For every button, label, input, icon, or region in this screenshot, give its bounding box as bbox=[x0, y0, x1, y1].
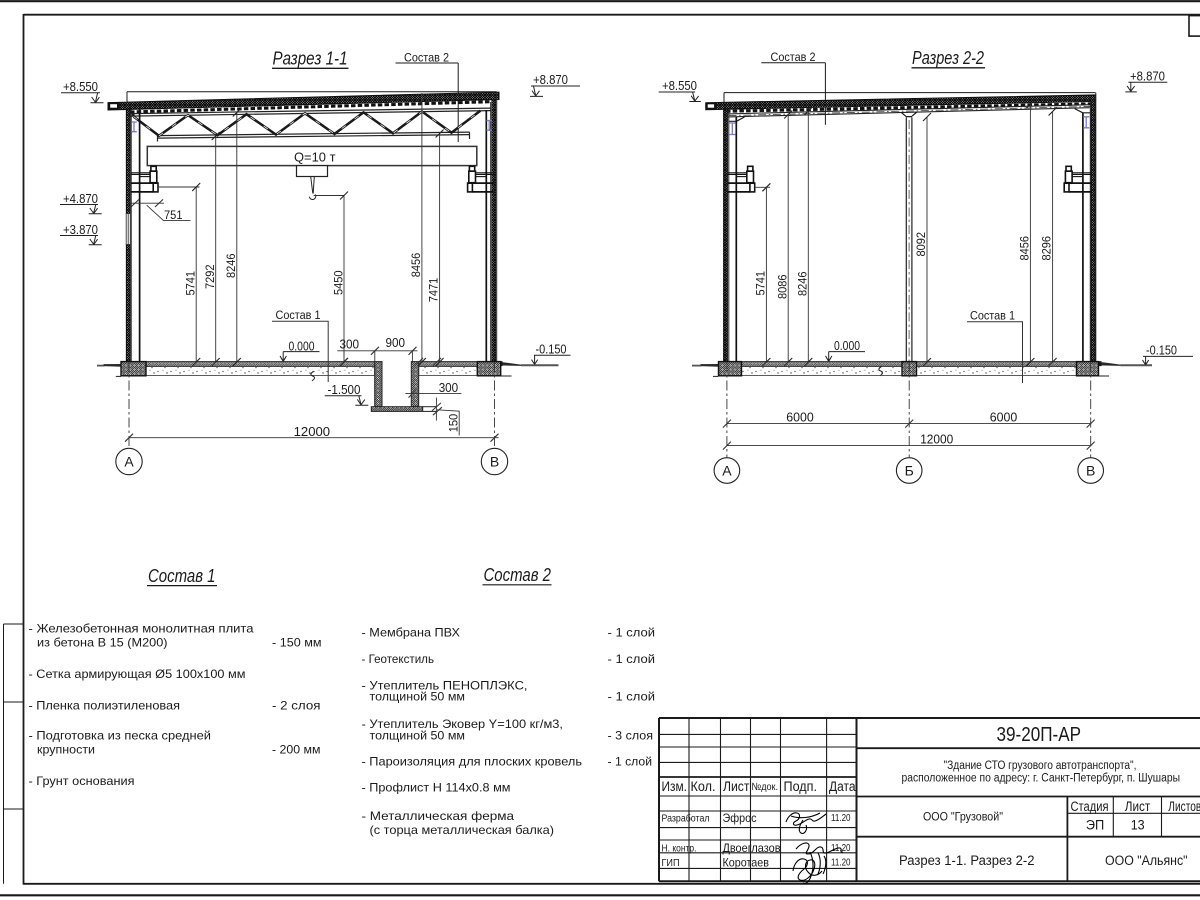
svg-text:-1.500: -1.500 bbox=[328, 383, 361, 397]
svg-text:из бетона В 15 (М200): из бетона В 15 (М200) bbox=[37, 636, 168, 650]
svg-text:0.000: 0.000 bbox=[834, 339, 860, 353]
svg-text:ООО "Грузовой": ООО "Грузовой" bbox=[923, 810, 1003, 824]
svg-text:13: 13 bbox=[1131, 818, 1145, 833]
svg-text:7471: 7471 bbox=[426, 278, 440, 303]
svg-text:Лист: Лист bbox=[723, 779, 750, 794]
svg-text:- Подготовка из песка средней: - Подготовка из песка средней bbox=[29, 729, 211, 743]
svg-text:Состав 1: Состав 1 bbox=[148, 565, 216, 586]
svg-text:расположенное по адресу: г. Са: расположенное по адресу: г. Санкт-Петерб… bbox=[902, 773, 1181, 785]
svg-text:8086: 8086 bbox=[775, 274, 789, 299]
svg-text:Разрез 2-2: Разрез 2-2 bbox=[912, 47, 985, 68]
svg-text:- Пленка полиэтиленовая: - Пленка полиэтиленовая bbox=[29, 699, 181, 713]
svg-text:12000: 12000 bbox=[294, 425, 331, 439]
svg-text:751: 751 bbox=[164, 208, 183, 222]
svg-text:- Металлическая ферма: - Металлическая ферма bbox=[362, 809, 515, 823]
svg-text:- 3 слоя: - 3 слоя bbox=[608, 729, 654, 743]
svg-text:Разработал: Разработал bbox=[662, 813, 710, 825]
svg-text:ООО "Альянс": ООО "Альянс" bbox=[1105, 853, 1188, 868]
svg-text:толщиной 50 мм: толщиной 50 мм bbox=[370, 690, 466, 704]
svg-text:- 1 слой: - 1 слой bbox=[608, 690, 656, 704]
svg-text:- 1 слой: - 1 слой bbox=[608, 652, 656, 666]
svg-text:6000: 6000 bbox=[990, 411, 1018, 425]
svg-text:150: 150 bbox=[447, 414, 461, 433]
svg-text:Лист: Лист bbox=[1125, 799, 1151, 814]
svg-text:толщиной 50 мм: толщиной 50 мм bbox=[370, 729, 466, 743]
svg-text:+8.870: +8.870 bbox=[533, 73, 568, 87]
svg-text:Б: Б bbox=[905, 463, 914, 479]
svg-text:39-20П-АР: 39-20П-АР bbox=[997, 724, 1082, 746]
svg-text:ЭП: ЭП bbox=[1086, 818, 1105, 833]
svg-text:-0.150: -0.150 bbox=[536, 343, 567, 357]
svg-text:8296: 8296 bbox=[1040, 236, 1054, 261]
svg-text:Состав 2: Состав 2 bbox=[771, 50, 816, 64]
svg-text:Подп.: Подп. bbox=[784, 779, 818, 794]
svg-text:Стадия: Стадия bbox=[1071, 799, 1109, 814]
svg-text:12000: 12000 bbox=[920, 433, 953, 447]
svg-text:(с торца металлическая балка): (с торца металлическая балка) bbox=[370, 823, 555, 837]
svg-text:+4.870: +4.870 bbox=[63, 192, 98, 206]
svg-text:8246: 8246 bbox=[795, 271, 809, 296]
svg-text:+8.550: +8.550 bbox=[662, 79, 697, 93]
svg-text:Состав 2: Состав 2 bbox=[484, 564, 552, 585]
svg-text:А: А bbox=[722, 463, 732, 479]
svg-text:- 2 слоя: - 2 слоя bbox=[272, 699, 321, 713]
svg-text:5741: 5741 bbox=[183, 271, 197, 296]
svg-text:- 1 слой: - 1 слой bbox=[608, 755, 653, 769]
svg-text:7292: 7292 bbox=[203, 264, 217, 289]
svg-text:"Здание СТО грузового автотран: "Здание СТО грузового автотранспорта", bbox=[944, 760, 1137, 772]
svg-text:8456: 8456 bbox=[1018, 236, 1032, 261]
svg-text:Разрез 1-1. Разрез 2-2: Разрез 1-1. Разрез 2-2 bbox=[899, 853, 1035, 868]
svg-text:8246: 8246 bbox=[224, 253, 238, 278]
svg-text:- Грунт основания: - Грунт основания bbox=[29, 774, 135, 788]
svg-text:Двоеглазов: Двоеглазов bbox=[723, 841, 781, 855]
svg-text:Коротаев: Коротаев bbox=[723, 856, 770, 870]
svg-text:крупности: крупности bbox=[37, 743, 95, 757]
svg-text:В: В bbox=[490, 454, 499, 470]
svg-text:Состав 2: Состав 2 bbox=[404, 50, 449, 64]
svg-text:- Профлист Н 114х0.8 мм: - Профлист Н 114х0.8 мм bbox=[362, 781, 511, 795]
svg-text:- Железобетонная монолитная п: - Железобетонная монолитная плита bbox=[29, 622, 254, 636]
svg-text:Листов: Листов bbox=[1168, 799, 1200, 814]
svg-text:Изм.: Изм. bbox=[662, 779, 688, 794]
svg-text:Н. контр.: Н. контр. bbox=[662, 844, 697, 855]
svg-text:- Пароизоляция для плоских кро: - Пароизоляция для плоских кровель bbox=[362, 755, 583, 769]
svg-text:- Сетка армирующая Ø5 100х100: - Сетка армирующая Ø5 100х100 мм bbox=[29, 667, 246, 681]
svg-text:Q=10 т: Q=10 т bbox=[294, 150, 336, 165]
svg-text:- 200 мм: - 200 мм bbox=[272, 743, 321, 757]
svg-text:- Мембрана ПВХ: - Мембрана ПВХ bbox=[362, 626, 461, 640]
svg-text:300: 300 bbox=[439, 381, 459, 395]
svg-text:5450: 5450 bbox=[331, 270, 345, 295]
svg-text:300: 300 bbox=[340, 337, 360, 351]
svg-text:Разрез 1-1: Разрез 1-1 bbox=[273, 48, 348, 69]
svg-text:5741: 5741 bbox=[754, 271, 768, 296]
svg-text:+3.870: +3.870 bbox=[63, 223, 98, 237]
svg-text:Дата: Дата bbox=[829, 779, 856, 794]
svg-text:Эфрос: Эфрос bbox=[723, 811, 757, 825]
svg-text:- 1 слой: - 1 слой bbox=[608, 626, 656, 640]
svg-text:6000: 6000 bbox=[786, 411, 814, 425]
svg-text:ГИП: ГИП bbox=[662, 858, 680, 869]
svg-text:8092: 8092 bbox=[914, 232, 928, 257]
svg-text:В: В bbox=[1086, 463, 1095, 479]
svg-text:900: 900 bbox=[386, 336, 406, 350]
svg-text:- 150 мм: - 150 мм bbox=[272, 636, 322, 650]
svg-text:11.20: 11.20 bbox=[831, 812, 851, 824]
svg-text:+8.870: +8.870 bbox=[1130, 69, 1165, 83]
svg-text:+8.550: +8.550 bbox=[63, 80, 98, 94]
svg-text:-0.150: -0.150 bbox=[1146, 344, 1177, 358]
svg-text:8456: 8456 bbox=[409, 253, 423, 278]
svg-text:Кол.: Кол. bbox=[691, 779, 716, 794]
svg-text:Состав 1: Состав 1 bbox=[970, 309, 1015, 323]
svg-text:А: А bbox=[124, 454, 134, 470]
svg-text:№док.: №док. bbox=[752, 781, 779, 793]
svg-text:11.20: 11.20 bbox=[831, 857, 851, 869]
svg-text:- Геотекстиль: - Геотекстиль bbox=[362, 652, 435, 666]
svg-text:Состав 1: Состав 1 bbox=[276, 308, 321, 322]
